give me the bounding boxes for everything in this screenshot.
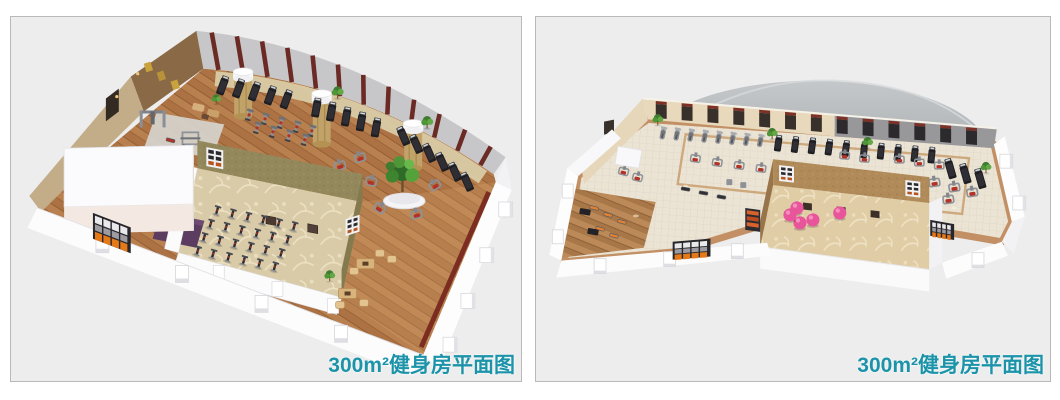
gym-ball-icon [783, 208, 796, 223]
wall-window [863, 118, 874, 136]
room-picture [871, 210, 880, 218]
group-room [760, 159, 942, 291]
caption-left: 300m²健身房平面图 [328, 349, 515, 379]
locker-shelf-icon [673, 239, 711, 261]
floorplan-panel-left: 300m²健身房平面图 [10, 16, 522, 382]
floor-light [951, 207, 957, 210]
lounge-table-icon [357, 259, 375, 269]
lounge-chair-icon [375, 250, 384, 257]
window-shelf-icon [779, 165, 794, 183]
wall-window [759, 110, 770, 128]
wall-pillar-block [272, 282, 283, 297]
wall-window [811, 114, 822, 132]
wall-window [888, 121, 899, 139]
wall-window [914, 123, 925, 141]
wall-window [785, 112, 796, 130]
floorplan-panel-right: 300m²健身房平面图 [535, 16, 1051, 382]
white-box [615, 146, 642, 168]
wall-window [733, 108, 744, 126]
floorplan-render-left [11, 17, 521, 381]
wall-window [837, 116, 848, 134]
spin-picture [308, 224, 318, 234]
window-shelf-icon [905, 180, 920, 198]
lounge-chair-icon [387, 256, 396, 263]
lounge-table-icon [339, 289, 357, 299]
wall-window [682, 103, 693, 121]
window-shelf-icon [206, 147, 223, 169]
gym-ball-icon [806, 213, 819, 228]
floorplan-render-right [536, 17, 1050, 381]
wall-window [940, 125, 951, 143]
lounge-chair-icon [350, 268, 359, 275]
caption-right: 300m²健身房平面图 [857, 349, 1044, 379]
wall-window [707, 105, 718, 123]
wall-window [966, 127, 977, 145]
lounge-chair-icon [336, 301, 345, 308]
room-picture [803, 203, 812, 211]
white-box-room [64, 145, 193, 234]
towel-shelf-icon [745, 208, 760, 232]
lounge-chair-icon [359, 299, 368, 306]
wall-pillar [387, 87, 388, 115]
gym-ball-icon [833, 206, 846, 221]
floor-light [633, 215, 639, 218]
